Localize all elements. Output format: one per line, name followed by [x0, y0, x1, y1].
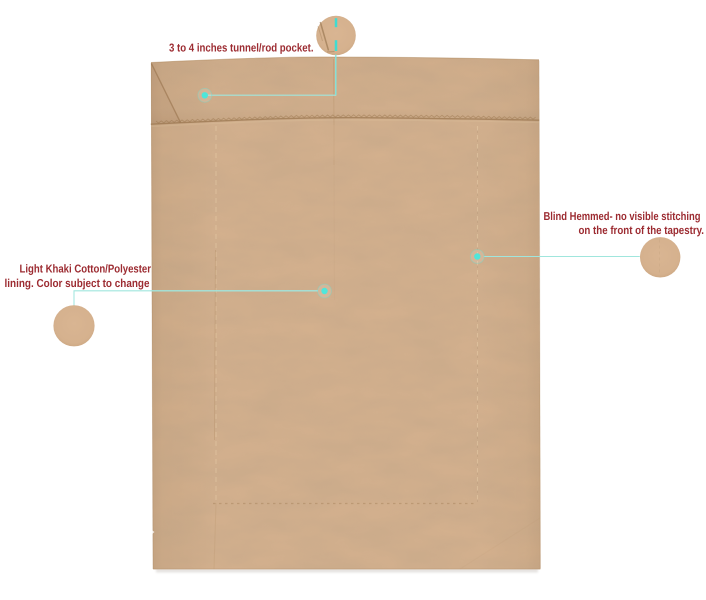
svg-text:lining. Color subject to chang: lining. Color subject to change: [5, 278, 150, 290]
svg-text:on the front of the tapestry.: on the front of the tapestry.: [579, 225, 705, 237]
svg-text:3 to 4 inches tunnel/rod pocke: 3 to 4 inches tunnel/rod pocket.: [169, 42, 314, 54]
svg-text:Light Khaki Cotton/Polyester: Light Khaki Cotton/Polyester: [20, 264, 152, 276]
svg-text:Blind Hemmed- no visible stitc: Blind Hemmed- no visible stitching: [544, 211, 701, 223]
